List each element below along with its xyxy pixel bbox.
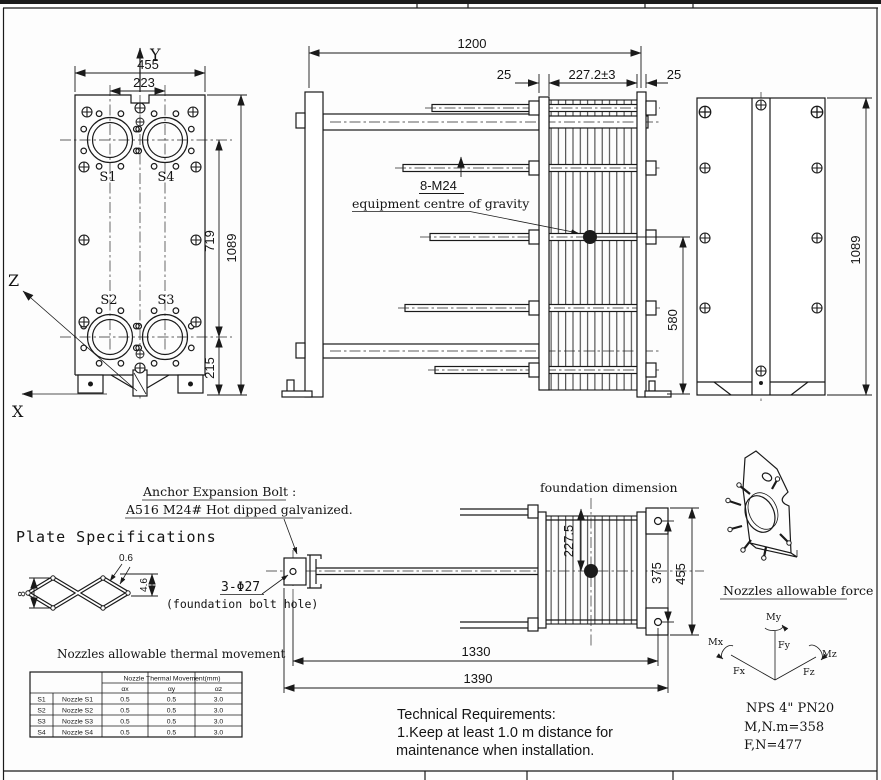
dim-front-nozzle-v: 719: [202, 230, 217, 252]
nozzle-force-section: Nozzles allowable force My Fy Mx Fx Mz F…: [708, 451, 873, 753]
table-title: Nozzles allowable thermal movement: [57, 647, 285, 661]
anchor-plate: [284, 558, 306, 585]
row-az: 3.0: [214, 730, 224, 737]
force-spec-force: F,N=477: [744, 738, 802, 753]
bolt-icon: [82, 107, 92, 117]
bolt-icon: [135, 363, 145, 373]
bolt-icon: [79, 235, 89, 245]
bolt-icon: [756, 366, 766, 376]
dim-front-nozzle-h: 223: [133, 75, 155, 90]
row-ay: 0.5: [167, 708, 177, 715]
bolt-icon: [756, 100, 766, 110]
tie-bolt-callout: 8-M24: [420, 178, 457, 193]
bolt-icon: [191, 235, 201, 245]
row-ax: 0.5: [120, 708, 130, 715]
label-fy: Fy: [778, 640, 791, 651]
nozzle-label-s2: S2: [100, 293, 117, 308]
label-fx: Fx: [733, 666, 746, 677]
col-header-ay: αy: [168, 686, 176, 693]
label-my: My: [766, 612, 782, 623]
dim-anchor-to-hole: 1330: [462, 644, 491, 659]
table-row: S1 Nozzle S1 0.5 0.5 3.0: [37, 697, 223, 704]
anchor-note-line2: A516 M24# Hot dipped galvanized.: [125, 502, 353, 517]
front-view: S1 S4 S2 S3 455 223 719 1089 215 Y Z X: [8, 45, 247, 421]
bolt-icon: [79, 162, 89, 172]
dim-foundation-width: 455: [673, 563, 688, 585]
side-view: 1200 25 227.2±3 25 8-M24 equipment centr…: [282, 36, 690, 397]
dim-pack-to-centre: 227.5: [561, 525, 576, 558]
table-span-header: Nozzle Thermal Movement(mm): [124, 676, 221, 683]
table-row: S2 Nozzle S2 0.5 0.5 3.0: [37, 708, 223, 715]
axis-x-label: X: [12, 402, 24, 421]
dim-plate-pack: 227.2±3: [569, 67, 616, 82]
front-support-foot: [282, 391, 312, 397]
col-header-ax: αx: [121, 686, 129, 693]
dim-plate-thickness: 0.6: [119, 553, 133, 564]
table-row: S3 Nozzle S3 0.5 0.5 3.0: [37, 719, 223, 726]
row-id: S3: [37, 719, 46, 726]
label-mz: Mz: [822, 649, 837, 660]
nozzle-label-s3: S3: [157, 293, 174, 308]
dim-gap-right: 25: [667, 67, 681, 82]
row-az: 3.0: [214, 708, 224, 715]
row-ax: 0.5: [120, 697, 130, 704]
bolt-icon: [700, 303, 710, 313]
table-row: S4 Nozzle S4 0.5 0.5 3.0: [37, 730, 223, 737]
centre-of-gravity-marker: [584, 564, 598, 578]
axis-y-label: Y: [149, 45, 161, 64]
centre-of-gravity-marker: [583, 230, 597, 244]
fixed-plate-column: [305, 92, 323, 397]
force-axes-diagram: My Fy Mx Fx Mz Fz: [708, 612, 837, 680]
bolt-icon: [812, 233, 822, 243]
tech-req-line2: maintenance when installation.: [396, 743, 594, 759]
row-az: 3.0: [214, 719, 224, 726]
drawing-sheet: S1 S4 S2 S3 455 223 719 1089 215 Y Z X: [0, 0, 881, 780]
nozzle-label-s1: S1: [99, 170, 116, 185]
bolt-icon: [700, 163, 710, 173]
bolt-icon: [700, 233, 710, 243]
row-ax: 0.5: [120, 719, 130, 726]
row-name: Nozzle S2: [62, 708, 93, 715]
row-ay: 0.5: [167, 719, 177, 726]
rear-view: 1089: [697, 92, 872, 401]
label-mx: Mx: [708, 637, 724, 648]
row-name: Nozzle S1: [62, 697, 93, 704]
dim-plate-height: 8: [17, 591, 28, 597]
col-header-az: αz: [215, 686, 223, 693]
bolt-icon: [188, 107, 198, 117]
foot-plate-bottom: [646, 608, 668, 635]
bolt-icon: [135, 103, 145, 113]
cog-label: equipment centre of gravity: [352, 196, 530, 211]
bolt-hole-qty-label: 3-Φ27: [221, 580, 260, 595]
tech-req-line1: 1.Keep at least 1.0 m distance for: [397, 725, 613, 741]
plate-pack: [549, 100, 637, 390]
row-id: S2: [37, 708, 46, 715]
thermal-movement-table: Nozzles allowable thermal movement Nozzl…: [30, 647, 285, 737]
bolt-icon: [191, 317, 201, 327]
bolt-icon: [136, 350, 144, 358]
row-id: S4: [37, 730, 46, 737]
support-column: [637, 92, 646, 397]
movable-plate: [539, 97, 549, 390]
dim-hole-spacing: 375: [649, 562, 664, 584]
dim-gap-left: 25: [497, 67, 511, 82]
nozzle-isometric: [726, 451, 797, 560]
row-name: Nozzle S4: [62, 730, 93, 737]
tech-req-title: Technical Requirements:: [397, 707, 556, 723]
row-ay: 0.5: [167, 730, 177, 737]
foundation-title: foundation dimension: [540, 480, 678, 495]
row-id: S1: [37, 697, 46, 704]
rear-plate-outline: [697, 98, 825, 395]
label-fz: Fz: [803, 667, 815, 678]
bolt-icon: [811, 106, 823, 118]
foundation-view: foundation dimension 227.5 375: [125, 480, 704, 693]
axis-z-label: Z: [8, 271, 19, 290]
dim-plate-depth: 4.6: [139, 578, 150, 592]
engineering-drawing: S1 S4 S2 S3 455 223 719 1089 215 Y Z X: [0, 0, 881, 780]
dim-rear-height: 1089: [848, 236, 863, 265]
row-ay: 0.5: [167, 697, 177, 704]
bolt-hole-note: (foundation bolt hole): [166, 597, 318, 611]
plate-spec-title: Plate Specifications: [16, 528, 217, 546]
row-az: 3.0: [214, 697, 224, 704]
technical-requirements: Technical Requirements: 1.Keep at least …: [396, 707, 613, 759]
bolt-icon: [191, 162, 201, 172]
dim-front-height: 1089: [224, 234, 239, 263]
bolt-icon: [699, 106, 711, 118]
dim-side-length: 1200: [458, 36, 487, 51]
bolt-icon: [136, 118, 144, 126]
force-spec-moment: M,N.m=358: [744, 720, 824, 735]
bolt-icon: [812, 303, 822, 313]
nozzle-label-s4: S4: [157, 170, 174, 185]
bolt-icon: [79, 317, 89, 327]
force-title: Nozzles allowable force: [723, 583, 873, 598]
dim-foundation-overall: 1390: [464, 671, 493, 686]
dim-front-bottom: 215: [202, 357, 217, 379]
force-spec-size: NPS 4" PN20: [746, 701, 834, 716]
bolt-icon: [812, 163, 822, 173]
anchor-note-line1: Anchor Expansion Bolt :: [142, 484, 296, 499]
row-ax: 0.5: [120, 730, 130, 737]
row-name: Nozzle S3: [62, 719, 93, 726]
dim-cog-height: 580: [665, 309, 680, 331]
